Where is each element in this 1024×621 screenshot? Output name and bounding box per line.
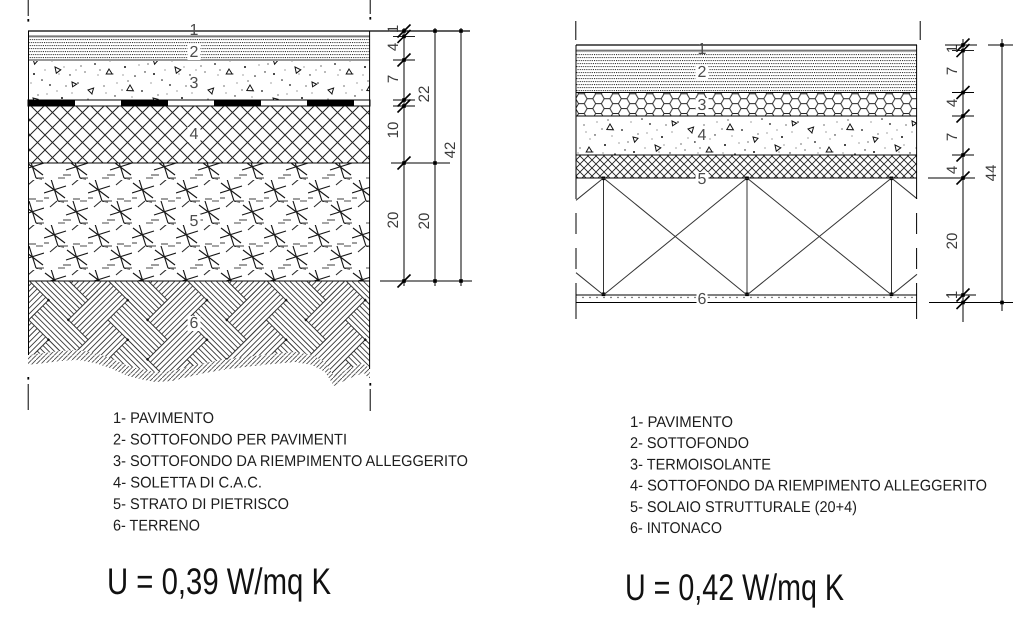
svg-text:20: 20: [416, 213, 433, 230]
svg-text:2- SOTTOFONDO: 2- SOTTOFONDO: [630, 435, 749, 452]
svg-text:5- SOLAIO STRUTTURALE (20+4): 5- SOLAIO STRUTTURALE (20+4): [630, 499, 857, 516]
svg-text:4: 4: [698, 127, 707, 144]
svg-text:7: 7: [385, 75, 402, 83]
svg-text:44: 44: [983, 165, 1000, 182]
svg-text:5- STRATO DI PIETRISCO: 5- STRATO DI PIETRISCO: [113, 496, 289, 513]
svg-text:1: 1: [190, 22, 199, 39]
svg-text:1: 1: [698, 41, 707, 58]
svg-text:10: 10: [385, 122, 402, 139]
svg-text:5: 5: [190, 213, 199, 230]
svg-text:4- SOLETTA DI C.A.C.: 4- SOLETTA DI C.A.C.: [113, 474, 262, 491]
svg-text:2: 2: [190, 44, 199, 61]
svg-text:20: 20: [944, 233, 961, 250]
svg-text:2- SOTTOFONDO PER PAVIMENTI: 2- SOTTOFONDO PER PAVIMENTI: [113, 431, 347, 448]
svg-text:1- PAVIMENTO: 1- PAVIMENTO: [630, 414, 733, 431]
svg-text:1: 1: [944, 291, 961, 299]
svg-text:42: 42: [442, 142, 459, 159]
svg-text:20: 20: [385, 212, 402, 229]
svg-text:6- INTONACO: 6- INTONACO: [630, 520, 722, 537]
svg-text:3: 3: [698, 97, 707, 114]
svg-text:3- TERMOISOLANTE: 3- TERMOISOLANTE: [630, 456, 771, 473]
svg-text:6- TERRENO: 6- TERRENO: [113, 517, 200, 534]
svg-text:U = 0,39 W/mq K: U = 0,39 W/mq K: [107, 561, 331, 602]
svg-text:3- SOTTOFONDO DA RIEMPIMENTO A: 3- SOTTOFONDO DA RIEMPIMENTO ALLEGGERITO: [113, 453, 468, 470]
svg-text:4: 4: [190, 126, 199, 143]
svg-text:4: 4: [944, 99, 961, 107]
svg-text:4: 4: [944, 166, 961, 174]
svg-text:22: 22: [416, 86, 433, 103]
svg-text:6: 6: [698, 291, 707, 308]
svg-text:6: 6: [190, 315, 199, 332]
svg-text:1: 1: [385, 25, 402, 33]
svg-text:2: 2: [698, 64, 707, 81]
svg-text:4: 4: [385, 43, 402, 51]
svg-text:7: 7: [944, 67, 961, 75]
svg-text:U = 0,42 W/mq K: U = 0,42 W/mq K: [625, 567, 844, 608]
svg-text:4- SOTTOFONDO DA RIEMPIMENTO A: 4- SOTTOFONDO DA RIEMPIMENTO ALLEGGERITO: [630, 478, 987, 495]
svg-text:1- PAVIMENTO: 1- PAVIMENTO: [113, 410, 214, 427]
svg-text:5: 5: [698, 171, 707, 188]
svg-text:3: 3: [190, 75, 199, 92]
svg-text:7: 7: [944, 133, 961, 141]
svg-text:1: 1: [944, 45, 961, 53]
